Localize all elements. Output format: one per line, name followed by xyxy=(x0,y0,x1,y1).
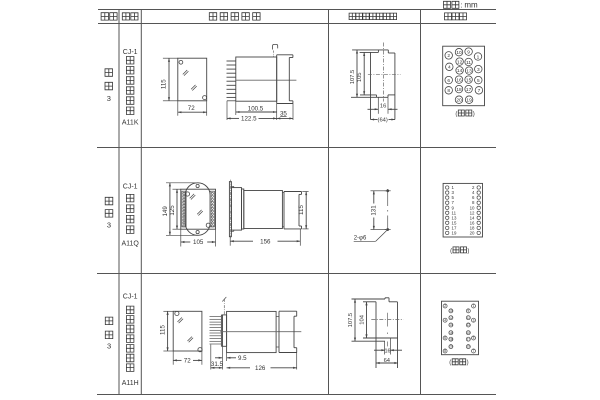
svg-text:(: ( xyxy=(449,360,451,366)
svg-text:107.5: 107.5 xyxy=(348,313,354,328)
svg-text:3: 3 xyxy=(107,221,111,230)
svg-text:5: 5 xyxy=(477,78,480,84)
svg-text:64: 64 xyxy=(384,358,391,364)
svg-text:3: 3 xyxy=(473,318,475,322)
svg-text:16: 16 xyxy=(384,348,390,354)
svg-text:10: 10 xyxy=(449,309,453,313)
svg-text:2: 2 xyxy=(444,304,446,308)
svg-text::: : xyxy=(461,0,463,9)
svg-text:(: ( xyxy=(450,248,452,254)
svg-text:15: 15 xyxy=(466,77,472,83)
svg-text:1: 1 xyxy=(477,54,480,60)
svg-text:14: 14 xyxy=(457,68,463,74)
svg-text:A11K: A11K xyxy=(122,120,139,127)
svg-text:4: 4 xyxy=(448,65,451,71)
svg-text:7: 7 xyxy=(473,349,475,353)
svg-text:19: 19 xyxy=(466,98,472,104)
svg-text:18: 18 xyxy=(449,337,453,341)
svg-text:A11H: A11H xyxy=(122,380,139,387)
svg-text:20: 20 xyxy=(456,98,462,104)
svg-text:6: 6 xyxy=(444,336,446,340)
svg-text:11: 11 xyxy=(466,60,471,66)
svg-text:): ) xyxy=(467,360,469,366)
svg-text:19: 19 xyxy=(467,345,471,349)
svg-text:149: 149 xyxy=(162,206,169,217)
svg-text:16: 16 xyxy=(456,77,462,83)
svg-text:115: 115 xyxy=(159,325,166,335)
svg-text:12: 12 xyxy=(457,59,463,65)
svg-text:105: 105 xyxy=(357,72,363,82)
svg-text:115: 115 xyxy=(161,79,168,89)
svg-text:9: 9 xyxy=(467,49,470,55)
svg-text:17: 17 xyxy=(467,337,471,341)
svg-text:3: 3 xyxy=(107,94,111,103)
svg-text:11: 11 xyxy=(467,316,471,320)
svg-text:125: 125 xyxy=(169,205,176,216)
svg-text:107.5: 107.5 xyxy=(350,70,356,85)
svg-text:5: 5 xyxy=(473,336,475,340)
svg-text:20: 20 xyxy=(449,345,453,349)
svg-text:122.5: 122.5 xyxy=(241,116,257,123)
svg-text:16: 16 xyxy=(449,331,453,335)
svg-text:105: 105 xyxy=(193,239,204,246)
svg-text:6: 6 xyxy=(447,78,450,84)
svg-text:A11Q: A11Q xyxy=(122,240,140,247)
svg-text:104: 104 xyxy=(360,314,366,324)
svg-text:(: ( xyxy=(455,111,457,117)
svg-text:1: 1 xyxy=(473,304,475,308)
svg-text:16: 16 xyxy=(380,103,386,109)
svg-text:18: 18 xyxy=(456,87,462,93)
svg-text:CJ-1: CJ-1 xyxy=(123,293,138,300)
svg-text:20: 20 xyxy=(470,231,475,236)
svg-text:13: 13 xyxy=(466,68,472,74)
svg-text:3: 3 xyxy=(107,342,111,351)
svg-text:CJ-1: CJ-1 xyxy=(123,184,138,191)
svg-text:131: 131 xyxy=(370,205,377,216)
svg-text:19: 19 xyxy=(452,231,457,236)
svg-text:10: 10 xyxy=(456,50,462,56)
svg-text:100.5: 100.5 xyxy=(248,105,264,112)
svg-text:12: 12 xyxy=(449,316,453,320)
svg-text:115: 115 xyxy=(298,205,305,215)
svg-text:CJ-1: CJ-1 xyxy=(123,49,138,56)
svg-text:72: 72 xyxy=(184,358,191,365)
svg-text:): ) xyxy=(473,111,475,117)
svg-text:15: 15 xyxy=(467,331,471,335)
svg-text:(64): (64) xyxy=(378,118,388,124)
svg-text:31.5: 31.5 xyxy=(211,361,224,368)
svg-text:13: 13 xyxy=(467,323,471,327)
svg-text:126: 126 xyxy=(255,365,266,372)
svg-text:2-φ6: 2-φ6 xyxy=(354,236,367,242)
svg-text:mm: mm xyxy=(464,0,478,9)
svg-text:3: 3 xyxy=(477,67,480,73)
svg-text:): ) xyxy=(467,248,469,254)
svg-text:2: 2 xyxy=(447,53,450,59)
svg-text:17: 17 xyxy=(466,87,472,93)
svg-text:8: 8 xyxy=(444,349,446,353)
svg-text:14: 14 xyxy=(449,323,453,327)
svg-text:7: 7 xyxy=(478,88,481,94)
svg-text:156: 156 xyxy=(260,239,271,246)
svg-text:9: 9 xyxy=(467,309,469,313)
svg-text:8: 8 xyxy=(447,88,450,94)
svg-text:72: 72 xyxy=(188,105,195,112)
svg-text:4: 4 xyxy=(444,318,446,322)
svg-text:9.5: 9.5 xyxy=(238,355,247,362)
